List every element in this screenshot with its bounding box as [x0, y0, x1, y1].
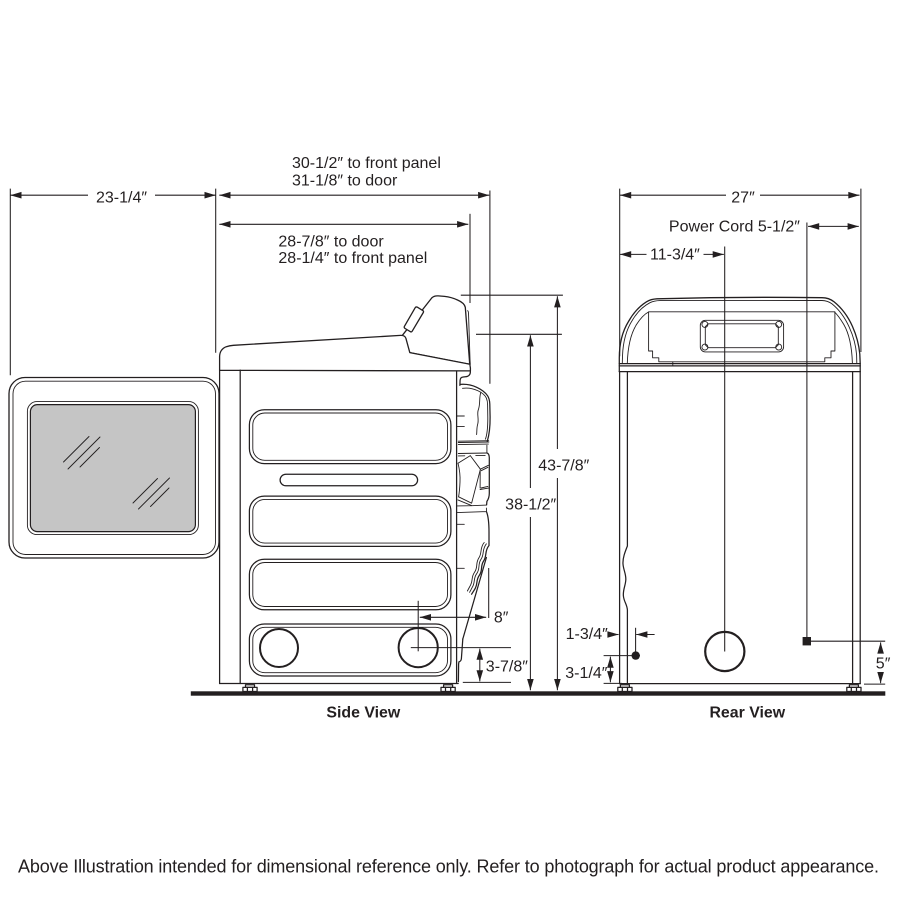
svg-text:1-3/4″: 1-3/4″ [566, 626, 608, 643]
svg-text:8″: 8″ [494, 609, 509, 626]
svg-text:28-1/4″ to front panel: 28-1/4″ to front panel [278, 250, 427, 267]
svg-text:Above Illustration intended fo: Above Illustration intended for dimensio… [18, 857, 879, 877]
svg-text:3-7/8″: 3-7/8″ [486, 658, 528, 675]
svg-text:23-1/4″: 23-1/4″ [96, 190, 147, 207]
svg-text:3-1/4″: 3-1/4″ [565, 665, 607, 682]
svg-text:30-1/2″ to front panel: 30-1/2″ to front panel [292, 155, 441, 172]
svg-text:31-1/8″ to door: 31-1/8″ to door [292, 173, 398, 190]
svg-text:Rear View: Rear View [709, 705, 785, 722]
svg-text:Side View: Side View [326, 705, 401, 722]
svg-text:Power Cord 5-1/2″: Power Cord 5-1/2″ [669, 219, 800, 236]
svg-text:11-3/4″: 11-3/4″ [650, 247, 700, 264]
svg-text:43-7/8″: 43-7/8″ [538, 458, 589, 475]
svg-text:38-1/2″: 38-1/2″ [505, 497, 556, 514]
svg-text:28-7/8″ to door: 28-7/8″ to door [278, 233, 384, 250]
svg-text:5″: 5″ [876, 655, 891, 672]
svg-text:27″: 27″ [731, 190, 755, 207]
